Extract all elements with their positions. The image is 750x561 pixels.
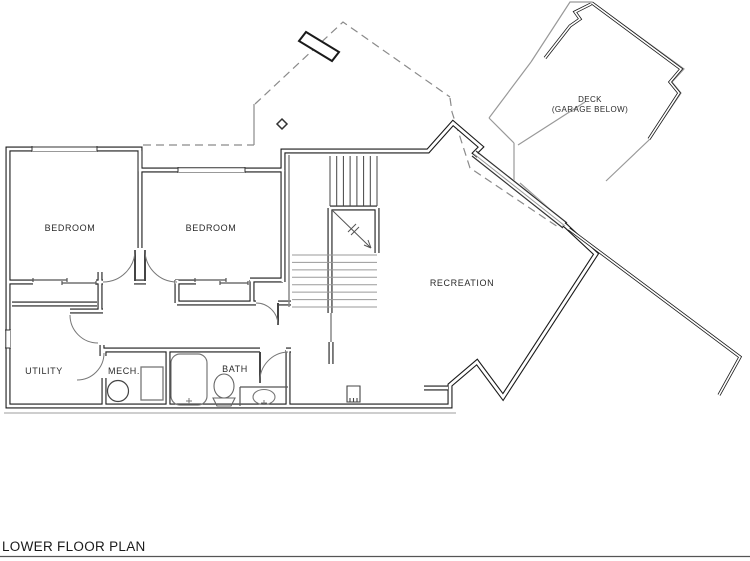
floor-plan-page: BEDROOM BEDROOM UTILITY MECH. BATH RECRE…	[0, 0, 750, 561]
labels-layer: BEDROOM BEDROOM UTILITY MECH. BATH RECRE…	[0, 95, 750, 557]
floor-plan-canvas: BEDROOM BEDROOM UTILITY MECH. BATH RECRE…	[0, 0, 750, 561]
room-label-recreation: RECREATION	[430, 278, 494, 288]
stair-lower-treads	[292, 255, 377, 307]
furnace	[141, 367, 163, 400]
room-label-deck: DECK	[578, 95, 602, 104]
bathtub	[171, 354, 207, 405]
electrical-panel	[347, 386, 360, 402]
room-label-mech: MECH.	[108, 366, 140, 376]
stair-landing-walls	[330, 208, 377, 313]
toilet	[214, 374, 234, 398]
room-label-bedroom-1: BEDROOM	[45, 223, 96, 233]
doors-layer	[33, 250, 288, 383]
linen-closet-door-arc	[256, 303, 278, 325]
bathtub-faucet-icon	[186, 398, 192, 404]
bedroom2-door-arc	[145, 250, 177, 282]
bedroom1-door-arc	[103, 250, 135, 282]
drawing-title: LOWER FLOOR PLAN	[2, 539, 146, 554]
walls-layer	[8, 123, 596, 406]
staircase	[289, 155, 377, 342]
exterior-envelope-wall	[8, 123, 596, 406]
deck-railing-east	[592, 3, 681, 139]
bath-door-arc	[260, 352, 288, 383]
closet1-walls	[12, 272, 103, 311]
deck-railing-east	[592, 3, 681, 139]
railings-layer	[545, 3, 740, 395]
post-diamond	[277, 119, 287, 129]
mech-door-arc	[77, 353, 104, 380]
stair-direction-arrow	[333, 211, 371, 248]
windows-layer	[5, 146, 567, 348]
deck-outline	[531, 2, 684, 181]
wall-openings-erase	[8, 149, 564, 348]
room-label-bedroom-2: BEDROOM	[186, 223, 237, 233]
water-heater	[108, 381, 129, 402]
room-label-bath: BATH	[222, 364, 248, 374]
room-label-utility: UTILITY	[25, 366, 63, 376]
deck-southwest-edge	[489, 62, 531, 118]
room-label-deck-sub: (GARAGE BELOW)	[552, 105, 628, 114]
exterior-envelope-wall	[8, 123, 596, 406]
walls-inner-face	[8, 123, 596, 406]
stair-landing-walls	[330, 208, 377, 313]
utility-door-arc	[70, 315, 98, 343]
stair-upper-treads	[330, 156, 377, 206]
stair-hall-wall	[289, 155, 331, 342]
